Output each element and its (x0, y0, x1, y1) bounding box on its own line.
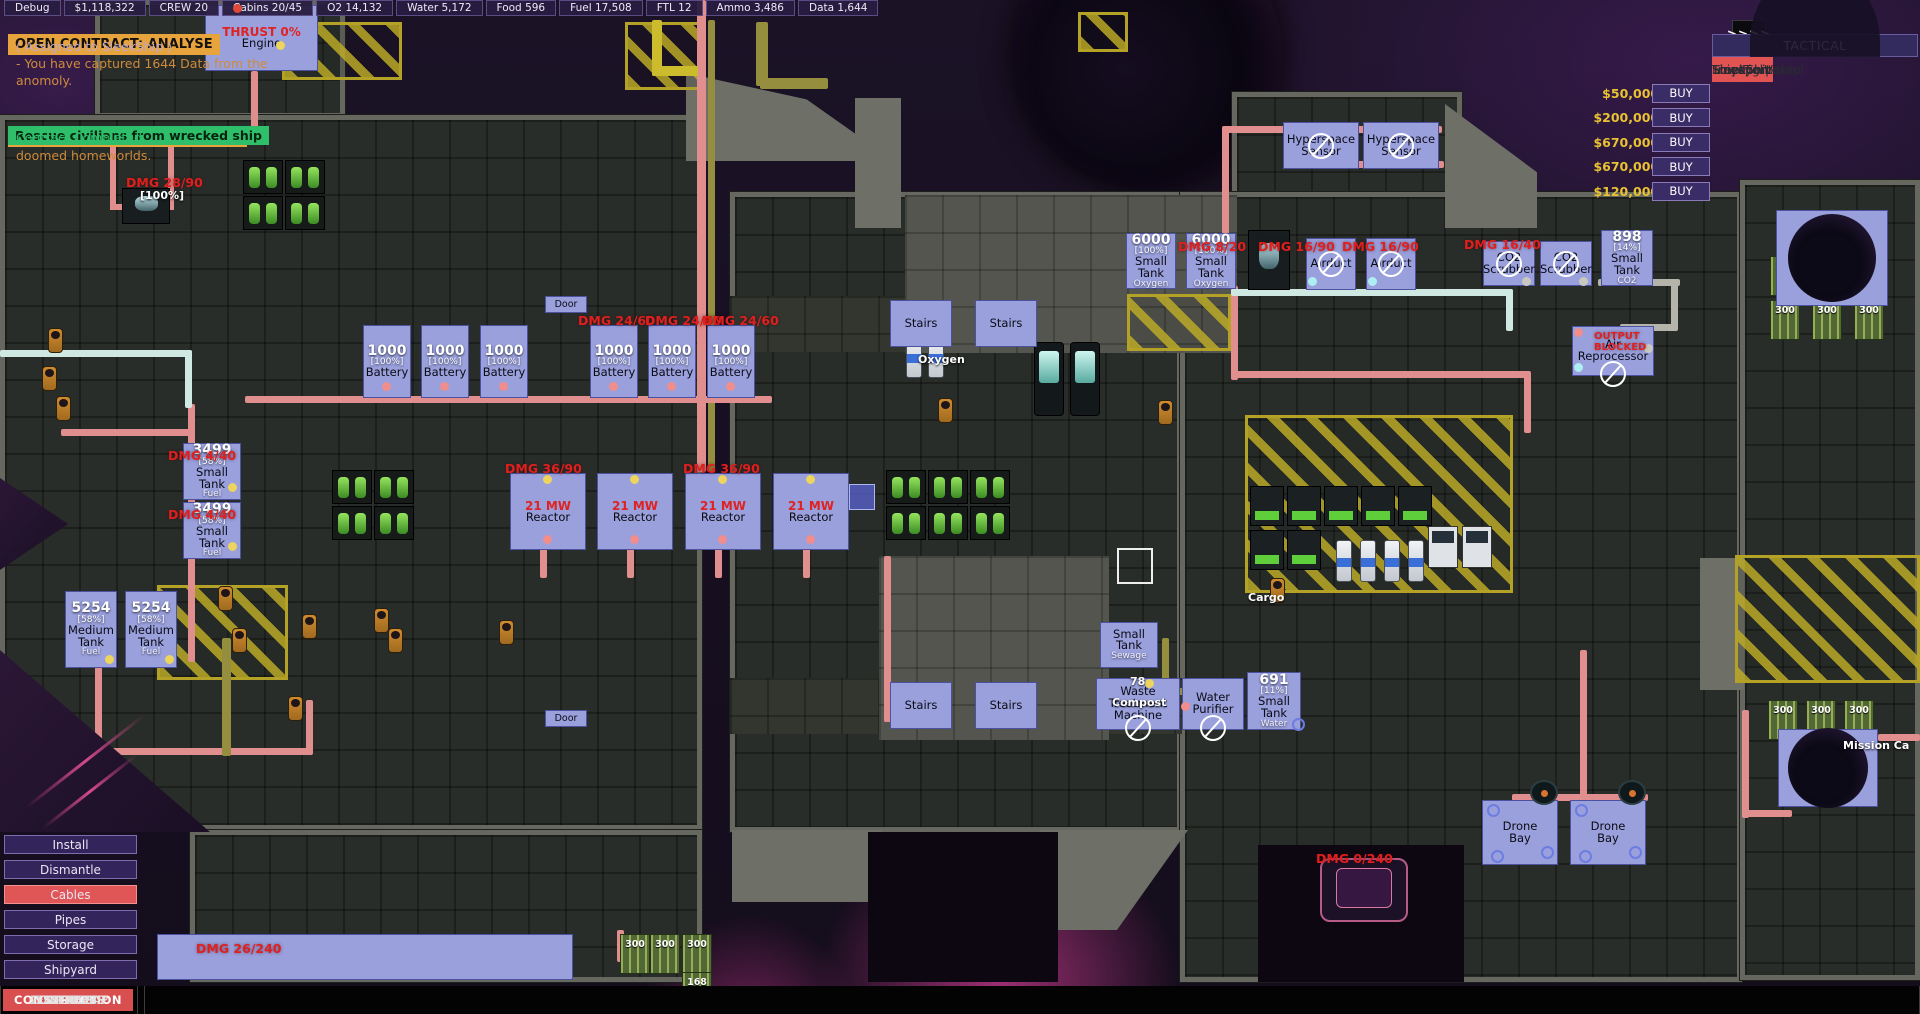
pipe (1231, 289, 1513, 296)
damage-label: DMG 16/90 (1342, 240, 1419, 253)
module-reactor[interactable]: 21 MWReactor (510, 473, 586, 550)
connection-node (1368, 277, 1377, 286)
bottom-tab-bar: CONSTRUCTIONTRADECONTRACTSPOWERGRIDFTLSE… (0, 986, 1920, 1014)
connection-node (228, 483, 237, 492)
connection-node (382, 382, 391, 391)
market-offer: $120,000 (-37%)BUY (1460, 180, 1710, 202)
module-reactor[interactable]: 21 MWReactor (773, 473, 849, 550)
appliance-white[interactable] (1428, 526, 1458, 568)
tab-overlays[interactable]: OVERLAYS (0, 986, 145, 1014)
hull-plating (1040, 830, 1188, 930)
connection-node (543, 535, 552, 544)
connection-node (440, 382, 449, 391)
market-offer: $200,000 (-37%)BUY (1460, 107, 1710, 129)
module-reactor[interactable]: 21 MWReactor (597, 473, 673, 550)
hyperspace-sensor-ring-icon (1388, 133, 1414, 159)
module-battery[interactable]: 1000[100%]Battery (707, 325, 755, 398)
damage-label: DMG 24/60 (702, 314, 779, 327)
module-hyperspace-sensor[interactable]: HyperspaceSensor (1363, 122, 1439, 169)
capacitor-bank[interactable] (332, 506, 372, 540)
resource-$1,118,322: $1,118,322 (64, 0, 146, 16)
module-battery[interactable]: 1000[100%]Battery (590, 325, 638, 398)
pipe (0, 350, 192, 357)
damage-label: DMG 16/90 (1258, 240, 1335, 253)
damage-label: DMG 4/40 (168, 508, 236, 521)
buy-button[interactable]: BUY (1652, 108, 1710, 127)
power-cable (540, 548, 547, 578)
connection-node (228, 542, 237, 551)
pipe (760, 78, 828, 89)
power-cable (1524, 371, 1531, 433)
item-label: Cargo (1248, 592, 1284, 604)
damage-label: DMG 36/90 (505, 462, 582, 475)
resource-data: Data 1,644 (798, 0, 878, 16)
crew-member[interactable] (218, 586, 233, 611)
resource-o2: O2 14,132 (316, 0, 393, 16)
market-offer: $50,000 (-37%)BUY (1460, 82, 1710, 104)
menu-cables[interactable]: Cables (4, 885, 137, 904)
drone (1530, 780, 1558, 805)
bottombar-spacer (0, 986, 1920, 1014)
item-label: [100%] (140, 190, 184, 202)
pipe (652, 66, 698, 76)
crew-member[interactable] (302, 614, 317, 639)
capacitor-bank[interactable] (970, 470, 1010, 504)
resource-ammo: Ammo 3,486 (706, 0, 795, 16)
pipe (708, 20, 715, 472)
connection-node (165, 655, 174, 664)
module-door[interactable]: Door (545, 296, 587, 313)
hull-plating (855, 98, 901, 228)
damage-label: DMG 0/240 (1316, 852, 1393, 865)
damage-label: DMG 26/240 (196, 942, 281, 955)
cryo-pod[interactable] (1070, 342, 1100, 416)
damage-label: DMG 16/40 (1464, 238, 1541, 251)
module-hyperspace-sensor[interactable]: HyperspaceSensor (1283, 122, 1359, 169)
appliance[interactable] (1324, 486, 1358, 526)
menu-install[interactable]: Install (4, 835, 137, 854)
module-battery[interactable]: 1000[100%]Battery (480, 325, 528, 398)
placement-outline (1117, 548, 1153, 584)
tactical-panel: TACTICALSleekShipEmptyScience VesselSlee… (1712, 34, 1918, 57)
power-cable (1231, 371, 1529, 378)
connection-node (1541, 846, 1554, 859)
cargo-crate[interactable]: 300 (1854, 300, 1884, 340)
top-resource-bar: Debug$1,118,322CREW 20Cabins 20/45O2 14,… (0, 0, 878, 16)
module-door[interactable]: Door (545, 710, 587, 727)
damage-label: DMG 24/60 (578, 314, 655, 327)
resource-debug: Debug (4, 0, 61, 16)
connection-node (1574, 328, 1583, 337)
connection-node (1181, 702, 1190, 711)
module-water-purifier[interactable]: WaterPurifier (1182, 678, 1244, 730)
connection-node (1575, 804, 1588, 817)
connection-node (718, 475, 727, 484)
connection-node (1579, 850, 1592, 863)
power-cable (1222, 126, 1229, 234)
appliance[interactable] (1398, 486, 1432, 526)
damage-label: OUTPUT BLOCKED (1594, 332, 1646, 353)
hull-plating (732, 830, 882, 902)
crew-member[interactable] (938, 398, 953, 423)
module-small-tank-oxygen[interactable]: 6000[100%]SmallTankOxygen (1126, 233, 1176, 289)
connection-node (1491, 850, 1504, 863)
crew-member[interactable] (42, 366, 57, 391)
gas-canister-item[interactable] (1408, 540, 1424, 582)
waste-treatment-machine-ring-icon (1125, 715, 1151, 741)
damage-label: DMG 36/90 (683, 462, 760, 475)
item-label: Oxygen (918, 354, 965, 366)
connection-node (806, 475, 815, 484)
power-cable (715, 548, 722, 578)
capacitor-bank[interactable] (374, 506, 414, 540)
resource-fuel: Fuel 17,508 (559, 0, 643, 16)
gas-canister-item[interactable] (1360, 540, 1376, 582)
connection-node (499, 382, 508, 391)
connection-node (726, 382, 735, 391)
connection-node (1308, 277, 1317, 286)
connection-node (1487, 804, 1500, 817)
connection-node (806, 535, 815, 544)
buy-button[interactable]: BUY (1652, 133, 1710, 152)
crew-member[interactable] (499, 620, 514, 645)
connection-node (630, 535, 639, 544)
cargo-crate[interactable]: 300 (650, 934, 680, 974)
drone (1618, 780, 1646, 805)
appliance[interactable] (1361, 486, 1395, 526)
pipe (1506, 289, 1513, 331)
power-cable (1742, 810, 1792, 817)
appliance-white[interactable] (1462, 526, 1492, 568)
capacitor-bank[interactable] (886, 506, 926, 540)
connection-node (1579, 277, 1588, 286)
hazard-floor (1078, 12, 1128, 52)
buy-button[interactable]: BUY (1652, 182, 1710, 201)
capacitor-bank[interactable] (243, 196, 283, 230)
connection-node (609, 382, 618, 391)
module-stairs[interactable]: Stairs (975, 682, 1037, 729)
connection-node (667, 382, 676, 391)
module-small-tank-water[interactable]: 691[11%]SmallTankWater (1247, 672, 1301, 730)
market-offer: $670,000 (-37%)BUY (1460, 156, 1710, 178)
hazard-floor (1127, 294, 1231, 351)
menu-pipes[interactable]: Pipes (4, 910, 137, 929)
capacitor-bank[interactable] (332, 470, 372, 504)
power-cable (306, 700, 313, 752)
power-cable (1580, 650, 1587, 800)
co2-scrubber-ring-icon (1496, 251, 1522, 277)
game-screen: 165300300300300300300265300300300168THRU… (0, 0, 1920, 1014)
gas-canister-item[interactable] (1384, 540, 1400, 582)
appliance[interactable] (1250, 530, 1284, 570)
module-stairs[interactable]: Stairs (890, 300, 952, 347)
capacitor-bank[interactable] (374, 470, 414, 504)
resource-food: Food 596 (486, 0, 557, 16)
shuttle[interactable] (1320, 858, 1408, 922)
power-cable (627, 548, 634, 578)
pipe (222, 638, 231, 756)
power-cable (61, 429, 191, 436)
contract-body: ( Assigned to SleekShip )- You have capt… (8, 34, 292, 95)
module-reactor[interactable]: 21 MWReactor (685, 473, 761, 550)
connection-node (543, 475, 552, 484)
item-label: 78 (1130, 676, 1145, 688)
item-label: Compost (1112, 697, 1166, 709)
connection-node (1522, 277, 1531, 286)
menu-dismantle[interactable]: Dismantle (4, 860, 137, 879)
resource-cabins: Cabins 20/45 (222, 0, 313, 16)
connection-node (1629, 846, 1642, 859)
module-drone-bay[interactable]: DroneBay (1482, 800, 1558, 865)
appliance[interactable] (1287, 530, 1321, 570)
resource-water: Water 5,172 (396, 0, 482, 16)
water-purifier-ring-icon (1200, 715, 1226, 741)
appliance[interactable] (1250, 486, 1284, 526)
market-offer: $670,000 (-37%)BUY (1460, 131, 1710, 153)
resource-crew: CREW 20 (149, 0, 219, 16)
airduct-ring-icon (1378, 251, 1404, 277)
pipe (185, 350, 192, 408)
gas-canister-item[interactable] (1336, 540, 1352, 582)
connection-node (1574, 363, 1583, 372)
crew-member[interactable] (232, 628, 247, 653)
crew-member[interactable] (1158, 400, 1173, 425)
hull-opening (868, 832, 1058, 982)
module-small-tank-co2[interactable]: 898[14%]SmallTankCO2 (1601, 230, 1653, 286)
buy-button[interactable]: BUY (1652, 157, 1710, 176)
cryo-pod[interactable] (1034, 342, 1064, 416)
alert-icon (233, 4, 242, 13)
round-hatch (1788, 214, 1876, 302)
crew-member[interactable] (56, 396, 71, 421)
module-stairs[interactable]: Stairs (890, 682, 952, 729)
damage-label: DMG 28/90 (126, 176, 203, 189)
module-battery[interactable]: 1000[100%]Battery (363, 325, 411, 398)
appliance[interactable] (1287, 486, 1321, 526)
module-drone-bay[interactable]: DroneBay (1570, 800, 1646, 865)
item-label: Mission Ca (1843, 740, 1909, 752)
cargo-crate[interactable]: 300 (682, 934, 712, 974)
connection-node (105, 655, 114, 664)
hazard-floor (625, 22, 705, 90)
menu-storage[interactable]: Storage (4, 935, 137, 954)
cargo-crate[interactable]: 300 (1812, 300, 1842, 340)
module-stairs[interactable]: Stairs (975, 300, 1037, 347)
power-cable (1231, 286, 1238, 380)
selection-cursor[interactable] (849, 484, 875, 510)
power-cable (1742, 710, 1749, 818)
resource-ftl: FTL 12 (646, 0, 703, 16)
capacitor-bank[interactable] (928, 506, 968, 540)
crew-member[interactable] (374, 608, 389, 633)
contract-status: Contract Completed (8, 126, 150, 149)
crew-member[interactable] (388, 628, 403, 653)
crew-member[interactable] (288, 696, 303, 721)
power-cable (95, 748, 313, 755)
module-medium-tank-fuel[interactable]: 5254[58%]MediumTankFuel (125, 591, 177, 668)
damage-label: DMG 8/20 (1178, 240, 1246, 253)
module-small-tank-sewage[interactable]: SmallTankSewage (1100, 622, 1158, 668)
airduct-ring-icon (1318, 251, 1344, 277)
damage-label: DMG 4/40 (168, 449, 236, 462)
connection-node (718, 535, 727, 544)
pipe (756, 22, 768, 86)
connection-node (630, 475, 639, 484)
module-co2-scrubber[interactable]: CO2Scrubber (1540, 241, 1592, 286)
capacitor-bank[interactable] (886, 470, 926, 504)
hazard-floor (1735, 555, 1920, 683)
module-battery[interactable]: 1000[100%]Battery (648, 325, 696, 398)
co2-scrubber-ring-icon (1553, 251, 1579, 277)
capacitor-bank[interactable] (285, 196, 325, 230)
crew-member[interactable] (48, 328, 63, 353)
menu-shipyard[interactable]: Shipyard (4, 960, 137, 979)
pipe (1671, 279, 1678, 329)
capacitor-bank[interactable] (970, 506, 1010, 540)
cargo-crate[interactable]: 300 (620, 934, 650, 974)
air-reprocessor-ring-icon (1600, 361, 1626, 387)
buy-button[interactable]: BUY (1652, 84, 1710, 103)
module-battery[interactable]: 1000[100%]Battery (421, 325, 469, 398)
power-cable (803, 548, 810, 578)
cargo-crate[interactable]: 300 (1770, 300, 1800, 340)
hyperspace-sensor-ring-icon (1308, 133, 1334, 159)
module-medium-tank-fuel[interactable]: 5254[58%]MediumTankFuel (65, 591, 117, 668)
capacitor-bank[interactable] (928, 470, 968, 504)
